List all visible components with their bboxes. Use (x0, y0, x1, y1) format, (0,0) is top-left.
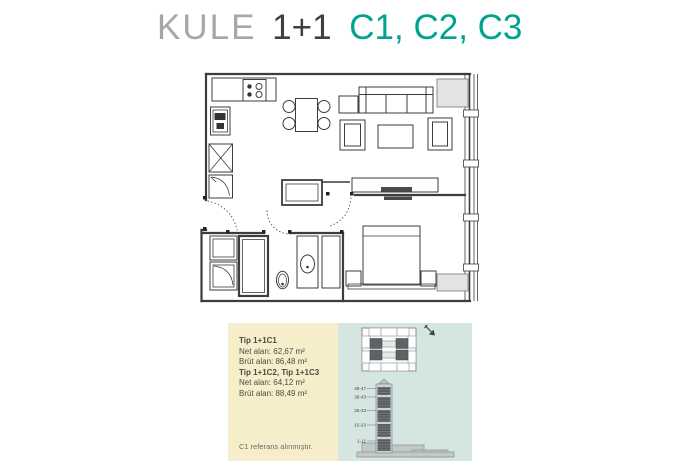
shower (239, 236, 268, 296)
dining-set (283, 99, 330, 132)
bath-closet (322, 236, 340, 288)
bedroom (346, 226, 436, 289)
kitchen (209, 78, 276, 198)
floor-range-label: 45-47 (354, 386, 366, 391)
page-title: KULE 1+1 C1, C2, C3 (157, 8, 522, 48)
tower-elevation: 45-47 39-43 25-33 15-23 1-11 (354, 379, 464, 459)
armchair-right (428, 118, 452, 150)
armchair-left (340, 120, 365, 150)
floor-range-label: 39-43 (354, 395, 366, 400)
spec-tip23-label: Tip 1+1C2, Tip 1+1C3 (239, 368, 338, 379)
curtain-wall-facade (464, 74, 479, 301)
podium (357, 443, 454, 457)
floor-range-label: 15-23 (354, 423, 366, 428)
floor-ticks (367, 389, 376, 442)
dining-chair (283, 118, 295, 130)
tv-living (381, 187, 412, 192)
floor-plan (200, 70, 490, 312)
kitchen-sink-unit (211, 107, 231, 135)
vanity-cabinets (210, 236, 237, 290)
outer-walls (202, 74, 471, 301)
floor-range-label: 1-11 (357, 439, 366, 444)
bathroom (210, 236, 340, 296)
dining-chair (318, 118, 330, 130)
bedroom-door-arc (330, 198, 351, 226)
info-box: Tip 1+1C1 Net alan: 62,67 m² Brüt alan: … (228, 323, 472, 461)
dining-chair (318, 101, 330, 113)
dining-table (296, 99, 318, 132)
cooktop (243, 80, 266, 102)
bathroom-door-arc (267, 211, 290, 234)
title-brand: KULE (157, 8, 256, 47)
floor-range-label: 25-33 (354, 408, 366, 413)
reference-footnote: C1 referans alınmıştır. (239, 442, 313, 453)
spec-tip1-label: Tip 1+1C1 (239, 336, 338, 347)
spec-tip23-brut: Brüt alan: 88,49 m² (239, 389, 338, 400)
sofa (359, 87, 433, 113)
spec-panel: Tip 1+1C1 Net alan: 62,67 m² Brüt alan: … (228, 323, 338, 461)
interior-walls (202, 195, 466, 301)
dining-chair (283, 101, 295, 113)
brochure-page: KULE 1+1 C1, C2, C3 (0, 0, 700, 466)
coffee-table (378, 125, 413, 148)
floor-range-labels: 45-47 39-43 25-33 15-23 1-11 (354, 386, 366, 444)
spec-tip1-net: Net alan: 62,67 m² (239, 347, 338, 358)
spec-tip1-brut: Brüt alan: 86,48 m² (239, 357, 338, 368)
tower-key-plan (361, 327, 417, 372)
toilet (277, 271, 289, 289)
door-swing-arcs (208, 198, 351, 234)
direction-arrow-icon (424, 324, 438, 340)
side-table (339, 96, 358, 113)
bed (363, 226, 420, 285)
tower-crown (379, 379, 390, 384)
entry-door-arc (208, 201, 237, 230)
title-unit-type: 1+1 (272, 8, 331, 47)
hall-closet (282, 180, 322, 205)
location-panel: 45-47 39-43 25-33 15-23 1-11 (338, 323, 472, 461)
title-variants: C1, C2, C3 (349, 8, 522, 47)
washbasin (297, 236, 318, 288)
spec-tip23-net: Net alan: 64,12 m² (239, 378, 338, 389)
tv-bedroom (384, 197, 412, 201)
